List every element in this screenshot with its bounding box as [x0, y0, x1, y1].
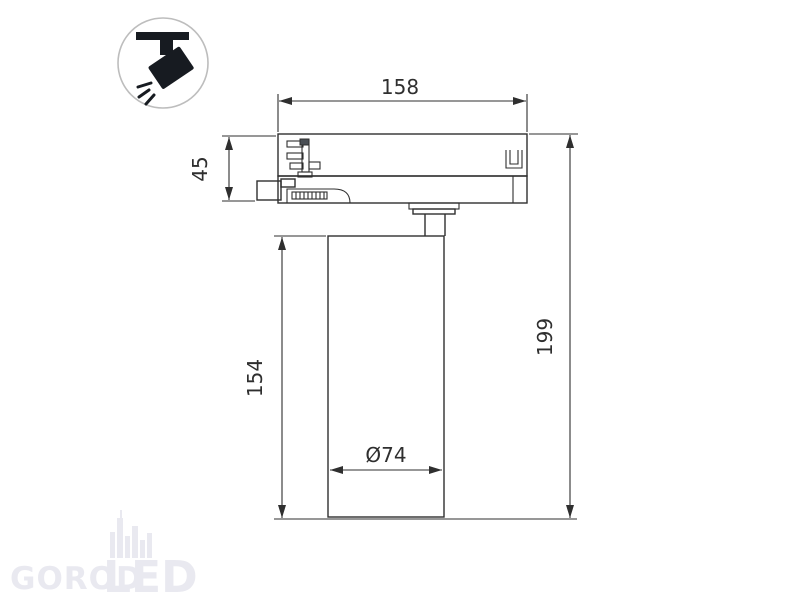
- contact-comb-detail: [287, 139, 320, 177]
- watermark-city-skyline-icon: [110, 510, 152, 558]
- technical-drawing-page: 158 45 154 199 Ø74 GOROD LED: [0, 0, 800, 600]
- dimension-label-158: 158: [381, 75, 419, 99]
- adapter-body: [278, 134, 527, 176]
- gorodled-watermark-logo: GOROD LED: [10, 510, 198, 600]
- icon-track-bar: [136, 32, 189, 40]
- pivot-flange-inner: [413, 209, 455, 214]
- dimension-adapter-width: 158: [278, 75, 527, 132]
- dimension-adapter-height: 45: [188, 136, 276, 201]
- grip-ribs: [296, 192, 324, 199]
- dimension-total-height: 199: [529, 134, 578, 518]
- dimension-body-height: 154: [243, 236, 326, 518]
- track-adapter-outline: [257, 134, 527, 203]
- arrow-up: [278, 237, 286, 250]
- track-spotlight-icon: [118, 18, 208, 108]
- lamp-body-cylinder: [328, 236, 444, 517]
- retaining-clip-detail: [506, 150, 522, 168]
- arrow-up: [566, 135, 574, 148]
- comb-cap: [300, 139, 309, 145]
- pivot-joint-outline: [409, 203, 459, 236]
- drawing-canvas: 158 45 154 199 Ø74 GOROD LED: [0, 0, 800, 600]
- arrow-down: [566, 505, 574, 518]
- grip-ribs-frame: [292, 192, 327, 199]
- arrow-right: [513, 97, 526, 105]
- lock-lever-detail: [257, 179, 350, 203]
- watermark-text-led: LED: [103, 552, 198, 600]
- pivot-flange-outer: [409, 203, 459, 209]
- dimension-label-154: 154: [243, 359, 267, 397]
- arrow-down: [225, 187, 233, 200]
- arrow-left: [279, 97, 292, 105]
- arrow-left: [330, 466, 343, 474]
- arrow-down: [278, 505, 286, 518]
- dimension-body-diameter: Ø74: [330, 443, 442, 474]
- dimension-label-45: 45: [188, 156, 212, 181]
- dimension-label-199: 199: [533, 318, 557, 356]
- lock-lever-step: [281, 179, 295, 187]
- dimension-label-diameter: Ø74: [365, 443, 406, 467]
- arrow-up: [225, 137, 233, 150]
- arrow-right: [429, 466, 442, 474]
